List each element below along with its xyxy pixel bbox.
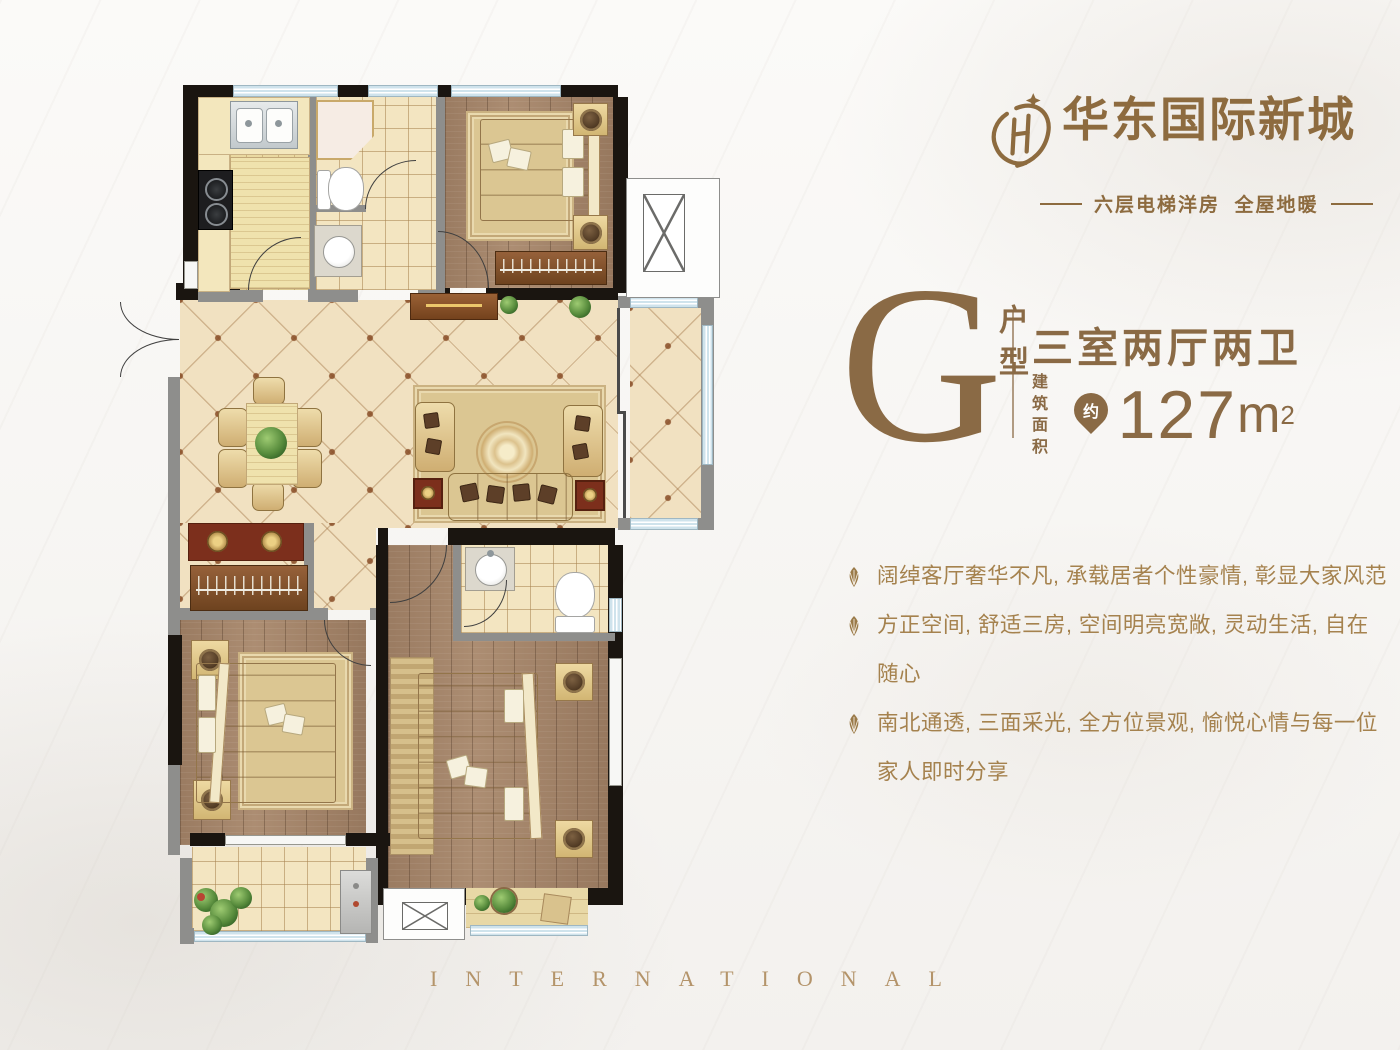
east-balcony-floor bbox=[630, 308, 701, 518]
feature-item: 方正空间, 舒适三房, 空间明亮宽敞, 灵动生活, 自在随心 bbox=[845, 601, 1390, 699]
partition-wall bbox=[453, 545, 461, 637]
window bbox=[609, 658, 622, 786]
brand-header: 华东国际新城 六层电梯洋房 全屋地暖 bbox=[988, 90, 1373, 217]
sideboard bbox=[188, 523, 304, 561]
divider bbox=[1012, 310, 1014, 438]
feature-text: 方正空间, 舒适三房, 空间明亮宽敞, 灵动生活, 自在随心 bbox=[877, 601, 1390, 699]
table-plant bbox=[255, 427, 287, 459]
pillow bbox=[504, 787, 524, 821]
area-value: 127 bbox=[1118, 381, 1237, 449]
floor-plan bbox=[118, 75, 733, 960]
plant bbox=[202, 915, 222, 935]
tagline-dash-right bbox=[1331, 203, 1373, 205]
tagline-dash-left bbox=[1040, 203, 1082, 205]
area-power: 2 bbox=[1280, 402, 1294, 428]
feature-text: 阔绰客厅奢华不凡, 承载居者个性豪情, 彰显大家风范 bbox=[877, 552, 1387, 601]
partition-wall bbox=[370, 608, 376, 620]
wall bbox=[588, 888, 615, 905]
stove bbox=[198, 170, 233, 230]
partition-wall bbox=[168, 765, 180, 855]
water-heater bbox=[340, 870, 372, 934]
window bbox=[451, 85, 561, 97]
dining-chair bbox=[253, 377, 285, 405]
wall bbox=[338, 85, 368, 97]
plant bbox=[230, 887, 252, 909]
unit-letter-label: 户型 bbox=[988, 304, 1032, 388]
wall bbox=[168, 635, 182, 765]
feature-item: 南北通透, 三面采光, 全方位景观, 愉悦心情与每一位家人即时分享 bbox=[845, 699, 1390, 797]
window bbox=[702, 325, 713, 465]
flower bbox=[197, 893, 205, 901]
side-table bbox=[575, 480, 605, 511]
brand-tagline: 六层电梯洋房 全屋地暖 bbox=[1094, 190, 1319, 217]
pillow bbox=[282, 713, 306, 735]
kitchen-appliance bbox=[184, 261, 198, 289]
pillow bbox=[464, 766, 489, 789]
potted-plant bbox=[492, 889, 516, 913]
plant bbox=[474, 895, 490, 911]
floor-mat bbox=[540, 893, 572, 925]
loveseat bbox=[415, 402, 455, 472]
window bbox=[368, 85, 438, 97]
unit-letter: G bbox=[840, 252, 1003, 477]
area-unit: m bbox=[1237, 389, 1280, 441]
pillow bbox=[506, 147, 532, 171]
pillow bbox=[198, 717, 216, 753]
entry-door-arc bbox=[120, 339, 179, 377]
loveseat bbox=[563, 405, 603, 477]
window bbox=[470, 925, 588, 936]
nightstand bbox=[573, 103, 608, 136]
toilet bbox=[555, 616, 595, 633]
dining-chair bbox=[252, 482, 284, 511]
window bbox=[233, 85, 338, 97]
ac-unit-icon bbox=[643, 194, 685, 272]
plant bbox=[569, 296, 591, 318]
brand-title: 华东国际新城 bbox=[1062, 90, 1356, 153]
page-background: 华东国际新城 六层电梯洋房 全屋地暖 G 户型 三室两厅两卫 建筑面积 约 12… bbox=[0, 0, 1400, 1050]
wall bbox=[190, 833, 225, 846]
window bbox=[609, 598, 622, 632]
fan-leaf-icon bbox=[845, 616, 863, 636]
pillow bbox=[504, 689, 524, 723]
footer-caption: INTERNATIONAL bbox=[0, 966, 1400, 992]
toilet bbox=[328, 167, 364, 211]
brand-logo-icon bbox=[988, 90, 1054, 182]
feature-text: 南北通透, 三面采光, 全方位景观, 愉悦心情与每一位家人即时分享 bbox=[877, 699, 1390, 797]
pillow bbox=[198, 675, 216, 711]
entry-door-arc bbox=[120, 302, 179, 340]
balcony-wall bbox=[180, 858, 192, 930]
feature-list: 阔绰客厅奢华不凡, 承载居者个性豪情, 彰显大家风范 方正空间, 舒适三房, 空… bbox=[845, 552, 1390, 797]
balcony-wall bbox=[180, 928, 194, 944]
wall bbox=[448, 528, 615, 545]
wall bbox=[561, 85, 618, 97]
nightstand bbox=[573, 215, 608, 250]
ac-platform bbox=[626, 178, 720, 298]
kitchen-sink bbox=[230, 101, 298, 149]
partition-wall bbox=[308, 290, 358, 302]
feature-item: 阔绰客厅奢华不凡, 承载居者个性豪情, 彰显大家风范 bbox=[845, 552, 1390, 601]
sofa bbox=[448, 473, 573, 521]
dining-chair bbox=[218, 408, 248, 447]
pin-approx-icon: 约 bbox=[1067, 386, 1115, 434]
plant bbox=[500, 296, 518, 314]
sliding-door bbox=[623, 413, 626, 518]
toilet bbox=[555, 572, 595, 618]
wardrobe bbox=[190, 565, 308, 611]
tv-cabinet bbox=[410, 293, 498, 320]
dining-chair bbox=[218, 449, 248, 488]
wall bbox=[378, 528, 388, 545]
sliding-door bbox=[617, 308, 620, 413]
bathroom-sink bbox=[314, 225, 362, 277]
fan-leaf-icon bbox=[845, 567, 863, 587]
nightstand bbox=[555, 663, 593, 701]
partition-wall bbox=[453, 633, 615, 641]
unit-area: 建筑面积 约 127 m 2 bbox=[1032, 372, 1295, 458]
sliding-window bbox=[225, 835, 346, 845]
wardrobe bbox=[495, 251, 607, 285]
window bbox=[630, 518, 698, 530]
ac-unit-icon bbox=[402, 902, 448, 930]
ac-platform bbox=[383, 888, 465, 940]
area-approx: 约 bbox=[1074, 393, 1108, 427]
nightstand bbox=[555, 820, 593, 858]
fan-leaf-icon bbox=[845, 714, 863, 734]
unit-layout: 三室两厅两卫 bbox=[1032, 314, 1302, 374]
partition-wall bbox=[168, 377, 180, 635]
wall bbox=[438, 85, 451, 97]
area-label: 建筑面积 bbox=[1032, 372, 1066, 458]
sliding-door bbox=[617, 411, 626, 414]
unit-info: G 户型 三室两厅两卫 建筑面积 约 127 m 2 bbox=[840, 252, 1360, 472]
side-table bbox=[413, 478, 443, 509]
pillow bbox=[562, 167, 584, 197]
